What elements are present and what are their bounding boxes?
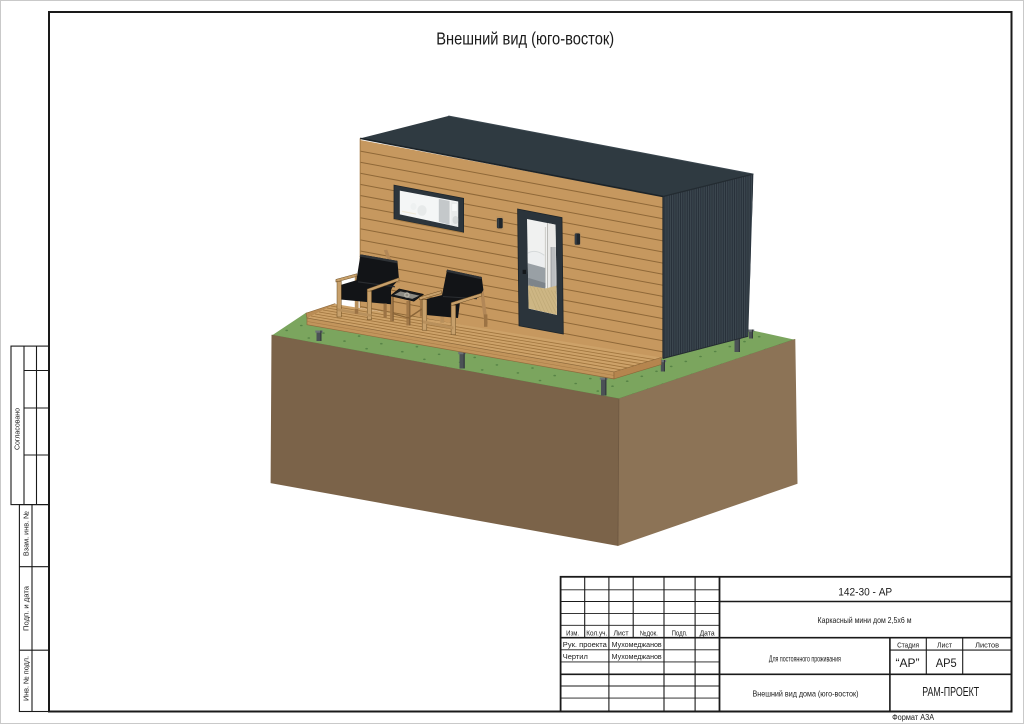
svg-text:Формат А3А: Формат А3А [892, 713, 935, 722]
svg-text:АР5: АР5 [936, 658, 957, 670]
svg-text:Каркасный мини дом 2,5х6 м: Каркасный мини дом 2,5х6 м [818, 615, 912, 625]
svg-text:Кол.уч.: Кол.уч. [586, 630, 607, 637]
svg-text:Чертил: Чертил [563, 654, 588, 661]
svg-text:Взам. инв. №: Взам. инв. № [22, 511, 31, 556]
svg-text:Внешний вид дома (юго-восток): Внешний вид дома (юго-восток) [753, 689, 859, 699]
svg-text:Изм.: Изм. [566, 630, 579, 637]
svg-text:Подп. и дата: Подп. и дата [22, 586, 31, 631]
svg-text:Лист: Лист [937, 641, 953, 650]
svg-text:Лист: Лист [614, 630, 630, 637]
svg-text:№док.: №док. [640, 630, 658, 637]
svg-text:Дата: Дата [700, 630, 715, 637]
svg-text:Инв. № подл.: Инв. № подл. [22, 656, 31, 701]
svg-text:РАМ-ПРОЕКТ: РАМ-ПРОЕКТ [922, 684, 979, 699]
svg-text:Согласовано: Согласовано [13, 408, 22, 450]
svg-text:Внешний вид (юго-восток): Внешний вид (юго-восток) [436, 29, 614, 49]
svg-text:Стадия: Стадия [897, 641, 919, 650]
svg-text:Мухомеджанов: Мухомеджанов [612, 654, 662, 661]
svg-text:Для постоянного проживания: Для постоянного проживания [769, 654, 841, 664]
svg-text:Листов: Листов [975, 641, 999, 650]
svg-text:Подп.: Подп. [672, 630, 688, 637]
svg-text:“АР”: “АР” [896, 658, 920, 670]
svg-text:Рук. проекта: Рук. проекта [563, 642, 607, 649]
svg-text:Мухомеджанов: Мухомеджанов [612, 642, 662, 649]
svg-text:142-30 - АР: 142-30 - АР [838, 586, 892, 598]
